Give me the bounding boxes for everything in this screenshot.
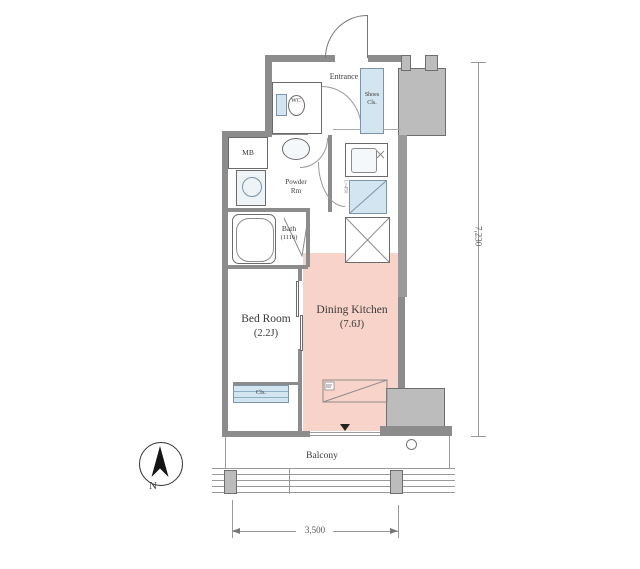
- powder-room-label: Powder Rm: [285, 178, 306, 196]
- dim-arrow-left: [232, 528, 240, 534]
- dk-furniture-tag: [325, 382, 334, 390]
- compass-needle-icon: [152, 446, 169, 477]
- compass-north-label: N: [149, 479, 157, 493]
- balcony-entry-marker: [340, 424, 350, 431]
- dining-kitchen-label: Dining Kitchen (7.6J): [316, 303, 387, 332]
- wc-label: WC: [291, 98, 301, 106]
- bath-label: Bath (1116): [281, 224, 298, 242]
- balcony-label: Balcony: [306, 450, 338, 462]
- closet-label: Cls.: [256, 389, 266, 397]
- entrance-label: Entrance: [330, 72, 358, 82]
- shoes-closet-label: Shoes Cls.: [365, 92, 379, 108]
- floor-plan: L=450 7,230 3,500: [0, 0, 640, 569]
- kitchen-equipment-diagonal: [350, 181, 386, 213]
- bedroom-label: Bed Room (2.2J): [241, 312, 291, 341]
- plan-overlay: [0, 0, 640, 569]
- meter-box-label: MB: [242, 148, 254, 158]
- dim-arrow-right: [390, 528, 398, 534]
